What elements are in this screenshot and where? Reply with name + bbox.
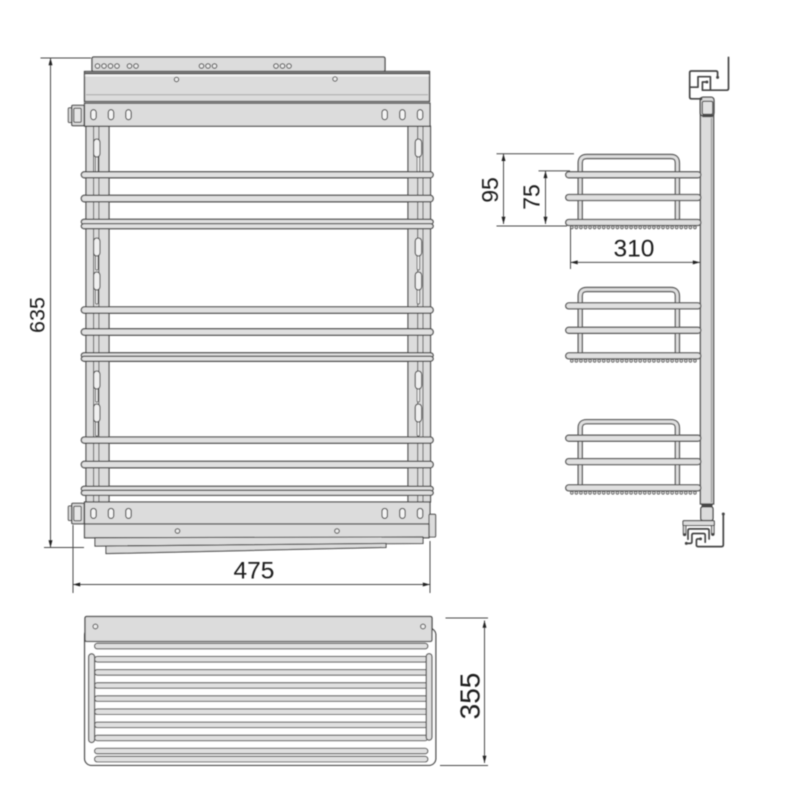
svg-text:310: 310 bbox=[614, 236, 655, 263]
svg-text:635: 635 bbox=[26, 297, 50, 333]
svg-text:75: 75 bbox=[519, 184, 545, 210]
svg-text:475: 475 bbox=[234, 558, 275, 585]
svg-text:355: 355 bbox=[455, 673, 486, 720]
svg-text:95: 95 bbox=[477, 177, 503, 203]
